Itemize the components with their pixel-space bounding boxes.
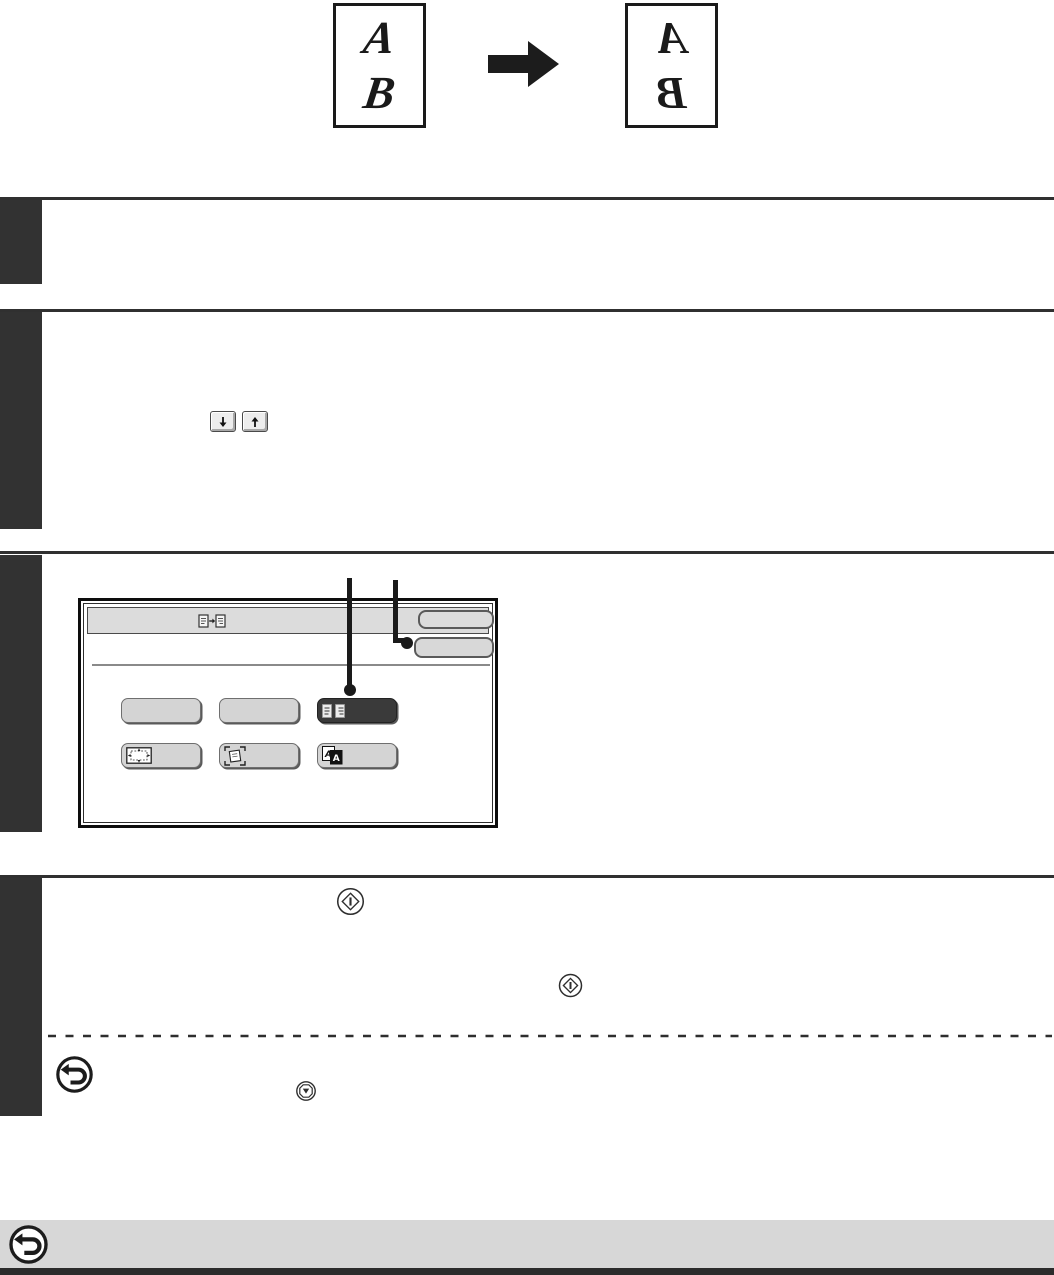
section-divider-4: [0, 875, 1054, 878]
callout-dot-mirror-key: [344, 684, 356, 696]
manual-page: A B A B: [0, 0, 1054, 1275]
original-letter-a: A: [361, 15, 398, 61]
callout-dot-ok-button: [401, 637, 413, 649]
mirrored-letter-a: A: [656, 15, 687, 61]
screen-ok-button[interactable]: [414, 637, 494, 658]
mirror-image-icon: [322, 704, 346, 718]
screen-key-mirror-image[interactable]: [317, 698, 397, 723]
original-letter-b: B: [361, 70, 398, 116]
right-arrow-icon: [488, 40, 560, 88]
section-divider-1: [0, 197, 1054, 200]
section-divider-2: [0, 309, 1054, 312]
svg-text:A: A: [333, 754, 340, 764]
screen-key-2[interactable]: [219, 698, 299, 723]
step-marker-3: [0, 555, 42, 832]
card-shot-icon: [224, 746, 246, 766]
screen-key-1[interactable]: [121, 698, 201, 723]
bw-reverse-icon: A A: [322, 746, 343, 765]
mirrored-letter-b: B: [656, 70, 687, 116]
screen-key-bw-reverse[interactable]: A A: [317, 743, 397, 768]
touch-screen-mockup: A A: [78, 598, 498, 828]
special-modes-icon: [198, 613, 226, 629]
centering-icon: [126, 747, 152, 764]
up-arrow-icon: [249, 416, 261, 428]
scroll-up-button[interactable]: [242, 411, 268, 432]
down-arrow-icon: [217, 416, 229, 428]
stop-key-icon: [295, 1080, 317, 1102]
start-key-icon: [336, 887, 365, 916]
original-page-illustration: A B: [333, 3, 426, 128]
footer-bar: [0, 1220, 1054, 1268]
scroll-down-button[interactable]: [210, 411, 236, 432]
step-marker-2: [0, 312, 42, 529]
screen-key-centering[interactable]: [121, 743, 201, 768]
mirrored-page-illustration: A B: [625, 3, 718, 128]
screen-header-right-button[interactable]: [418, 610, 494, 629]
u-turn-arrow-icon: [55, 1055, 94, 1094]
step-marker-1: [0, 200, 42, 284]
touch-screen-inner: A A: [83, 603, 493, 823]
callout-line-mirror-key: [347, 578, 352, 687]
footer-back-icon[interactable]: [8, 1224, 49, 1265]
dashed-separator: [48, 1034, 1052, 1038]
screen-key-card-shot[interactable]: [219, 743, 299, 768]
footer-bottom-strip: [0, 1268, 1054, 1275]
start-key-icon-2: [558, 973, 583, 998]
callout-line-ok-button: [393, 580, 398, 643]
step-marker-4: [0, 878, 42, 1116]
section-divider-3: [0, 551, 1054, 554]
screen-divider-line: [92, 664, 490, 666]
